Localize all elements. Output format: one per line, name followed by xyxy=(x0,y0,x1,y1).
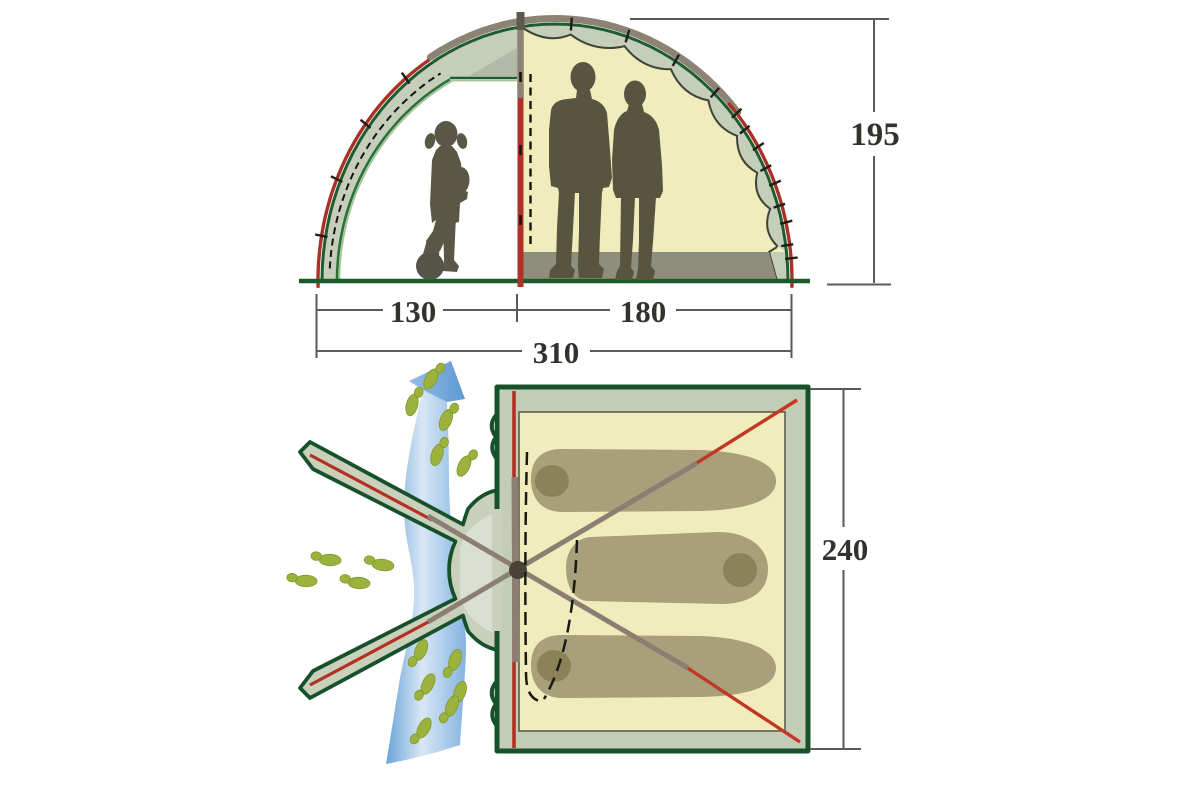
svg-text:310: 310 xyxy=(533,335,580,370)
svg-text:240: 240 xyxy=(822,532,869,567)
svg-text:195: 195 xyxy=(850,117,900,153)
svg-text:180: 180 xyxy=(620,294,667,329)
svg-text:130: 130 xyxy=(390,294,437,329)
